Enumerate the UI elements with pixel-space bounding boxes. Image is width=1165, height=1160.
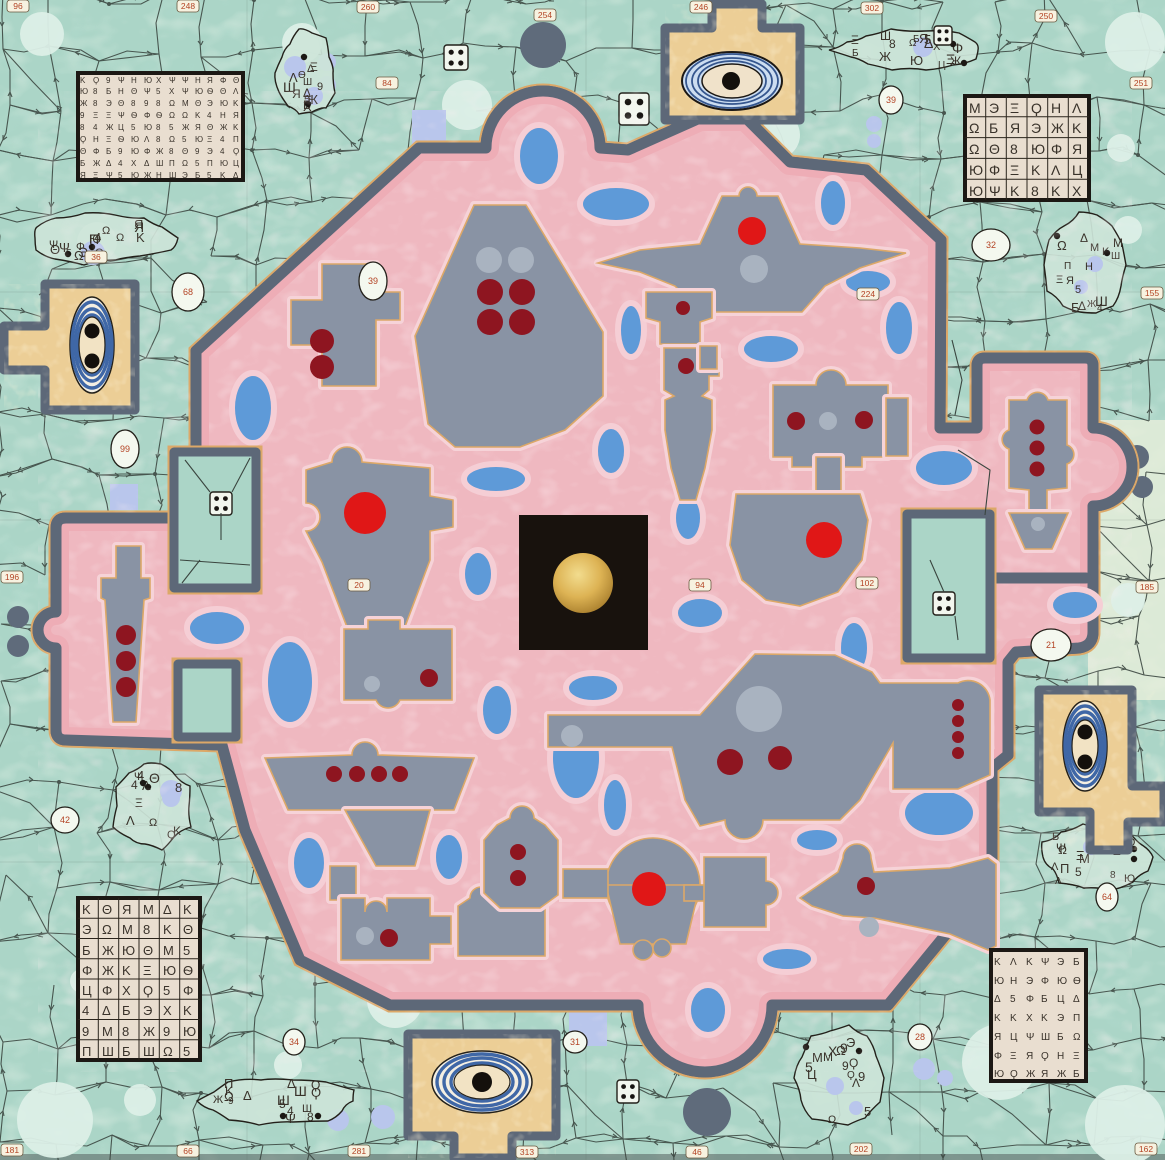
svg-text:185: 185 — [1140, 582, 1154, 592]
svg-text:Я: Я — [994, 1032, 1001, 1043]
svg-text:Θ: Θ — [207, 123, 213, 132]
svg-text:Я: Я — [1066, 275, 1074, 287]
svg-text:21: 21 — [1046, 640, 1056, 650]
svg-text:9: 9 — [163, 1024, 170, 1039]
svg-text:Ж: Ж — [220, 123, 228, 132]
svg-text:8: 8 — [156, 135, 161, 144]
svg-text:Б: Б — [1041, 994, 1048, 1005]
svg-text:Ϙ: Ϙ — [143, 983, 153, 998]
svg-text:Ю: Ю — [220, 159, 228, 168]
svg-text:Λ: Λ — [1051, 162, 1061, 178]
svg-text:5: 5 — [131, 123, 136, 132]
svg-text:Ϙ: Ϙ — [1041, 1051, 1049, 1062]
svg-text:248: 248 — [181, 1, 195, 11]
svg-text:Б: Б — [106, 147, 111, 156]
svg-text:4: 4 — [220, 135, 225, 144]
svg-text:8: 8 — [131, 99, 136, 108]
svg-text:Ω: Ω — [149, 817, 157, 829]
svg-text:K: K — [80, 76, 86, 85]
svg-text:8: 8 — [307, 1110, 314, 1124]
svg-text:9: 9 — [106, 76, 111, 85]
svg-text:X: X — [828, 1043, 838, 1059]
svg-text:8: 8 — [175, 780, 182, 795]
svg-text:9: 9 — [195, 147, 200, 156]
svg-text:Э: Э — [207, 147, 213, 156]
svg-text:Ю: Ю — [910, 53, 923, 68]
svg-text:4: 4 — [118, 159, 123, 168]
svg-text:202: 202 — [854, 1144, 868, 1154]
svg-text:5: 5 — [182, 135, 187, 144]
svg-text:H: H — [118, 87, 124, 96]
svg-text:5: 5 — [279, 1097, 286, 1111]
svg-text:32: 32 — [986, 240, 996, 250]
svg-text:H: H — [93, 135, 99, 144]
svg-text:5: 5 — [183, 1044, 190, 1059]
svg-text:H: H — [1085, 261, 1093, 273]
svg-text:M: M — [1090, 242, 1099, 254]
svg-text:Θ: Θ — [233, 76, 239, 85]
svg-text:Ю: Ю — [80, 87, 88, 96]
svg-text:Э: Э — [143, 1003, 152, 1018]
svg-text:Ξ: Ξ — [207, 135, 212, 144]
svg-text:Ц: Ц — [1057, 994, 1065, 1005]
svg-text:Ω: Ω — [169, 99, 175, 108]
svg-text:8: 8 — [1110, 870, 1116, 881]
svg-text:5: 5 — [169, 123, 174, 132]
svg-text:5: 5 — [1075, 284, 1081, 296]
svg-text:Ω: Ω — [1057, 238, 1067, 253]
svg-text:Φ: Φ — [102, 983, 112, 998]
svg-text:K: K — [1072, 120, 1082, 136]
svg-text:K: K — [225, 1084, 233, 1098]
svg-text:X: X — [131, 159, 137, 168]
svg-text:Ω: Ω — [828, 1114, 836, 1126]
svg-text:Ψ: Ψ — [118, 76, 125, 85]
svg-text:Я: Я — [1010, 120, 1020, 136]
svg-text:5: 5 — [156, 87, 161, 96]
svg-text:K: K — [1041, 1013, 1048, 1024]
svg-text:Θ: Θ — [182, 147, 188, 156]
svg-text:Ѳ: Ѳ — [183, 963, 193, 978]
svg-text:8: 8 — [93, 99, 98, 108]
svg-text:Φ: Φ — [989, 162, 1000, 178]
svg-text:Ю: Ю — [969, 183, 983, 199]
svg-text:X: X — [163, 1003, 172, 1018]
svg-text:M: M — [143, 902, 154, 917]
svg-text:Δ: Δ — [233, 171, 239, 180]
svg-text:254: 254 — [538, 10, 552, 20]
svg-text:Ψ: Ψ — [182, 87, 189, 96]
svg-text:31: 31 — [570, 1037, 580, 1047]
svg-text:X: X — [169, 87, 175, 96]
svg-text:4: 4 — [207, 111, 212, 120]
svg-text:Θ: Θ — [102, 902, 112, 917]
svg-text:Ш: Ш — [169, 171, 176, 180]
svg-text:Δ: Δ — [1078, 299, 1086, 313]
svg-text:Ц: Ц — [1010, 1032, 1018, 1043]
svg-text:Ш: Ш — [294, 1083, 307, 1099]
svg-text:K: K — [183, 902, 192, 917]
svg-text:Ю: Ю — [994, 1069, 1004, 1080]
svg-text:4: 4 — [1097, 303, 1103, 314]
svg-text:Ц: Ц — [233, 159, 239, 168]
svg-text:Ж: Ж — [102, 963, 114, 978]
svg-text:Ψ: Ψ — [118, 111, 125, 120]
svg-text:20: 20 — [354, 580, 364, 590]
svg-text:X: X — [1072, 183, 1082, 199]
svg-text:K: K — [1010, 1013, 1017, 1024]
svg-text:Ω: Ω — [969, 120, 979, 136]
svg-text:Ю: Ю — [163, 963, 176, 978]
svg-text:Ш: Ш — [143, 1044, 155, 1059]
svg-text:68: 68 — [183, 287, 193, 297]
svg-text:Ѳ: Ѳ — [1073, 976, 1081, 987]
svg-text:66: 66 — [183, 1146, 193, 1156]
svg-text:H: H — [1010, 976, 1017, 987]
svg-text:Ж: Ж — [182, 123, 190, 132]
svg-text:Ξ: Ξ — [143, 963, 151, 978]
svg-text:Б: Б — [122, 1044, 131, 1059]
svg-text:K: K — [233, 123, 239, 132]
svg-text:Б: Б — [1073, 957, 1080, 968]
svg-text:155: 155 — [1145, 288, 1159, 298]
svg-text:Я: Я — [122, 902, 131, 917]
svg-text:Π: Π — [1060, 861, 1069, 876]
svg-text:Я: Я — [80, 171, 86, 180]
svg-text:Ξ: Ξ — [135, 796, 143, 810]
svg-text:Ξ: Ξ — [1010, 1051, 1017, 1062]
svg-text:Θ: Θ — [80, 147, 86, 156]
svg-text:Ж: Ж — [950, 54, 961, 68]
svg-text:Ϙ: Ϙ — [167, 829, 176, 841]
svg-text:9: 9 — [82, 1024, 89, 1039]
svg-text:5: 5 — [1075, 865, 1082, 879]
svg-text:Δ: Δ — [102, 1003, 111, 1018]
svg-text:H: H — [1051, 100, 1061, 116]
svg-text:8: 8 — [80, 123, 85, 132]
svg-text:Δ: Δ — [1080, 231, 1088, 245]
svg-text:46: 46 — [692, 1147, 702, 1157]
svg-text:8: 8 — [122, 1024, 129, 1039]
svg-text:Ϙ: Ϙ — [1031, 100, 1042, 116]
svg-text:Ц: Ц — [807, 1067, 817, 1082]
svg-text:M: M — [163, 943, 174, 958]
svg-text:Δ: Δ — [243, 1088, 252, 1103]
svg-text:8: 8 — [143, 922, 150, 937]
svg-text:Ξ: Ξ — [106, 111, 111, 120]
svg-text:Ю: Ю — [1124, 873, 1135, 885]
svg-text:Б: Б — [122, 1003, 131, 1018]
svg-text:H: H — [156, 171, 162, 180]
svg-text:Ю: Ю — [1057, 976, 1067, 987]
svg-text:Ψ: Ψ — [182, 76, 189, 85]
svg-text:39: 39 — [886, 95, 896, 105]
svg-text:Δ: Δ — [1073, 994, 1080, 1005]
svg-text:Ψ: Ψ — [169, 76, 176, 85]
svg-text:Λ: Λ — [144, 135, 150, 144]
svg-text:Ю: Ю — [183, 1024, 196, 1039]
svg-text:5: 5 — [163, 983, 170, 998]
svg-text:Ω: Ω — [182, 111, 188, 120]
svg-text:H: H — [131, 76, 137, 85]
svg-text:Я: Я — [195, 123, 201, 132]
svg-text:M: M — [969, 100, 981, 116]
svg-text:Ц: Ц — [1072, 162, 1083, 178]
svg-text:K: K — [163, 922, 172, 937]
svg-text:Э: Э — [989, 100, 999, 116]
svg-text:Ψ: Ψ — [1026, 1032, 1034, 1043]
svg-text:9: 9 — [144, 99, 149, 108]
svg-text:Ψ: Ψ — [285, 1111, 296, 1126]
svg-text:Э: Э — [207, 99, 213, 108]
svg-text:Δ: Δ — [163, 902, 172, 917]
svg-text:Λ: Λ — [1055, 876, 1062, 887]
svg-text:Б: Б — [1052, 831, 1059, 843]
svg-text:Ω: Ω — [102, 922, 112, 937]
svg-text:Я: Я — [134, 217, 143, 232]
svg-text:Ξ: Ξ — [1056, 274, 1063, 286]
svg-text:Ж: Ж — [1026, 1069, 1036, 1080]
svg-text:9: 9 — [80, 111, 85, 120]
svg-text:M: M — [182, 99, 189, 108]
svg-text:Φ: Φ — [1026, 994, 1034, 1005]
svg-text:Ю: Ю — [144, 76, 152, 85]
svg-text:Ξ: Ξ — [93, 111, 98, 120]
svg-text:5: 5 — [183, 943, 190, 958]
svg-text:Я: Я — [207, 76, 213, 85]
svg-text:Ξ: Ξ — [93, 171, 98, 180]
svg-text:Ξ: Ξ — [1010, 162, 1019, 178]
svg-text:39: 39 — [368, 276, 378, 286]
svg-text:Ц: Ц — [118, 123, 124, 132]
svg-text:Φ: Φ — [1041, 976, 1049, 987]
svg-text:36: 36 — [91, 252, 101, 262]
svg-text:Ж: Ж — [143, 1024, 155, 1039]
svg-text:Π: Π — [1064, 261, 1071, 272]
svg-text:M: M — [1113, 236, 1123, 250]
svg-text:Ω: Ω — [182, 159, 188, 168]
svg-text:K: K — [1010, 183, 1020, 199]
svg-text:X: X — [156, 76, 162, 85]
svg-text:8: 8 — [169, 147, 174, 156]
svg-text:Φ: Φ — [1051, 141, 1062, 157]
svg-text:H: H — [220, 111, 226, 120]
svg-text:Б: Б — [852, 48, 859, 59]
svg-text:Ѳ: Ѳ — [298, 70, 306, 81]
svg-text:Ж: Ж — [93, 159, 101, 168]
svg-text:4: 4 — [82, 1003, 89, 1018]
svg-text:Я: Я — [233, 111, 239, 120]
svg-text:X: X — [1026, 1013, 1033, 1024]
svg-text:Π: Π — [207, 159, 213, 168]
svg-text:Ѳ: Ѳ — [131, 111, 137, 120]
svg-text:Ϙ: Ϙ — [1010, 1069, 1018, 1080]
svg-text:34: 34 — [289, 1037, 299, 1047]
svg-text:Ω: Ω — [1058, 843, 1067, 857]
svg-text:Θ: Θ — [220, 87, 226, 96]
svg-text:Λ: Λ — [1072, 100, 1082, 116]
svg-text:Ω: Ω — [169, 135, 175, 144]
svg-text:302: 302 — [865, 3, 879, 13]
svg-text:Э: Э — [1057, 1013, 1064, 1024]
svg-text:Π: Π — [169, 159, 175, 168]
svg-text:Ж: Ж — [102, 943, 114, 958]
svg-text:K: K — [220, 171, 226, 180]
svg-text:Ω: Ω — [969, 141, 979, 157]
svg-text:Я: Я — [1041, 1069, 1048, 1080]
svg-text:M: M — [812, 1050, 823, 1065]
svg-text:Я: Я — [1072, 141, 1082, 157]
svg-text:Θ: Θ — [195, 99, 201, 108]
svg-text:84: 84 — [382, 78, 392, 88]
svg-text:Я: Я — [1026, 1051, 1033, 1062]
svg-text:Π: Π — [1073, 1013, 1080, 1024]
svg-text:Ѳ: Ѳ — [207, 87, 213, 96]
svg-text:K: K — [1051, 183, 1061, 199]
svg-text:Ϙ: Ϙ — [93, 76, 99, 85]
svg-text:Ϙ: Ϙ — [80, 135, 86, 144]
svg-text:Φ: Φ — [144, 147, 150, 156]
svg-text:Ψ: Ψ — [1041, 957, 1049, 968]
svg-text:5: 5 — [1010, 994, 1016, 1005]
svg-text:Б: Б — [1057, 1032, 1064, 1043]
svg-text:Ш: Ш — [283, 79, 296, 95]
svg-text:94: 94 — [695, 580, 705, 590]
svg-text:Φ: Φ — [220, 76, 226, 85]
svg-text:Θ: Θ — [183, 922, 193, 937]
svg-text:M: M — [122, 922, 133, 937]
svg-text:Б: Б — [80, 159, 85, 168]
svg-text:K: K — [183, 1003, 192, 1018]
svg-text:Δ: Δ — [144, 159, 150, 168]
svg-text:Δ: Δ — [924, 35, 933, 51]
svg-text:Θ: Θ — [143, 943, 153, 958]
svg-text:K: K — [122, 963, 131, 978]
svg-text:Ю: Ю — [969, 162, 983, 178]
svg-text:K: K — [1031, 162, 1041, 178]
svg-text:Ш: Ш — [156, 159, 163, 168]
svg-text:250: 250 — [1039, 11, 1053, 21]
svg-text:Φ: Φ — [82, 963, 92, 978]
svg-text:Ѳ: Ѳ — [118, 135, 124, 144]
svg-text:Δ: Δ — [307, 63, 315, 75]
svg-text:Ж: Ж — [1057, 1069, 1067, 1080]
svg-text:Φ: Φ — [994, 1051, 1002, 1062]
svg-text:224: 224 — [861, 289, 875, 299]
svg-text:Λ: Λ — [1010, 957, 1017, 968]
svg-text:K: K — [233, 99, 239, 108]
svg-text:Π: Π — [82, 1044, 91, 1059]
svg-text:Θ: Θ — [131, 87, 137, 96]
svg-text:181: 181 — [5, 1145, 19, 1155]
svg-text:Ж: Ж — [213, 1094, 223, 1106]
svg-text:Ψ: Ψ — [989, 183, 1001, 199]
svg-text:Θ: Θ — [989, 141, 1000, 157]
svg-text:8: 8 — [156, 123, 161, 132]
svg-text:246: 246 — [694, 2, 708, 12]
svg-text:8: 8 — [1031, 183, 1039, 199]
svg-text:Ш: Ш — [1041, 1032, 1050, 1043]
svg-text:Ш: Ш — [880, 29, 891, 43]
svg-text:5: 5 — [864, 1104, 871, 1119]
svg-text:Φ: Φ — [183, 983, 193, 998]
svg-text:5: 5 — [207, 171, 212, 180]
svg-text:Ж: Ж — [106, 123, 114, 132]
svg-text:Ю: Ю — [220, 99, 228, 108]
svg-text:Ϙ: Ϙ — [849, 1056, 858, 1070]
svg-text:H: H — [1057, 1051, 1064, 1062]
svg-text:4: 4 — [94, 230, 101, 245]
svg-text:Ю: Ю — [994, 976, 1004, 987]
svg-text:Ю: Ю — [131, 135, 139, 144]
svg-text:Ω: Ω — [836, 1043, 846, 1058]
svg-text:Ω: Ω — [102, 225, 110, 237]
svg-text:Ш: Ш — [102, 1044, 114, 1059]
svg-text:5: 5 — [195, 159, 200, 168]
svg-text:8: 8 — [93, 87, 98, 96]
svg-text:Ж: Ж — [80, 99, 88, 108]
svg-text:Б: Б — [106, 87, 111, 96]
svg-text:Э: Э — [106, 99, 112, 108]
svg-text:4: 4 — [220, 147, 225, 156]
svg-text:42: 42 — [60, 815, 70, 825]
svg-text:Φ: Φ — [93, 147, 99, 156]
svg-text:Ϙ: Ϙ — [233, 147, 239, 156]
svg-text:K: K — [82, 902, 91, 917]
svg-text:Δ: Δ — [287, 1076, 296, 1091]
svg-text:Ω: Ω — [74, 248, 84, 263]
svg-text:Ξ: Ξ — [1010, 100, 1019, 116]
svg-text:162: 162 — [1139, 1144, 1153, 1154]
svg-text:260: 260 — [361, 2, 375, 12]
svg-text:Ξ: Ξ — [1073, 1051, 1080, 1062]
svg-text:Ω: Ω — [163, 1044, 173, 1059]
svg-text:Ξ: Ξ — [106, 135, 111, 144]
svg-text:Ω: Ω — [116, 232, 124, 244]
svg-text:Б: Б — [1073, 1069, 1080, 1080]
svg-text:Ю: Ю — [195, 135, 203, 144]
svg-text:28: 28 — [915, 1032, 925, 1042]
svg-text:Ю: Ю — [122, 943, 135, 958]
svg-text:K: K — [994, 1013, 1001, 1024]
svg-text:Φ: Φ — [144, 111, 150, 120]
svg-text:Ψ: Ψ — [106, 171, 113, 180]
svg-text:9: 9 — [118, 147, 123, 156]
svg-text:Б: Б — [913, 34, 920, 45]
svg-text:313: 313 — [520, 1147, 534, 1157]
svg-text:Б: Б — [195, 171, 200, 180]
svg-text:Ψ: Ψ — [49, 239, 58, 251]
svg-text:Ю: Ю — [144, 123, 152, 132]
svg-text:281: 281 — [352, 1146, 366, 1156]
svg-text:Λ: Λ — [1051, 861, 1059, 873]
svg-text:Э: Э — [82, 922, 91, 937]
svg-text:Ю: Ю — [195, 87, 203, 96]
svg-text:Ж: Ж — [144, 171, 152, 180]
svg-text:X: X — [122, 983, 131, 998]
svg-text:Э: Э — [846, 1035, 855, 1050]
svg-text:Ю: Ю — [131, 147, 139, 156]
svg-text:8: 8 — [156, 99, 161, 108]
svg-text:Ж: Ж — [156, 147, 164, 156]
svg-text:Ϙ: Ϙ — [847, 1070, 855, 1081]
svg-text:5: 5 — [118, 171, 123, 180]
svg-text:K: K — [195, 111, 201, 120]
svg-text:Δ: Δ — [106, 159, 112, 168]
svg-text:Λ: Λ — [233, 87, 239, 96]
svg-text:102: 102 — [860, 578, 874, 588]
svg-text:Ψ: Ψ — [144, 87, 151, 96]
